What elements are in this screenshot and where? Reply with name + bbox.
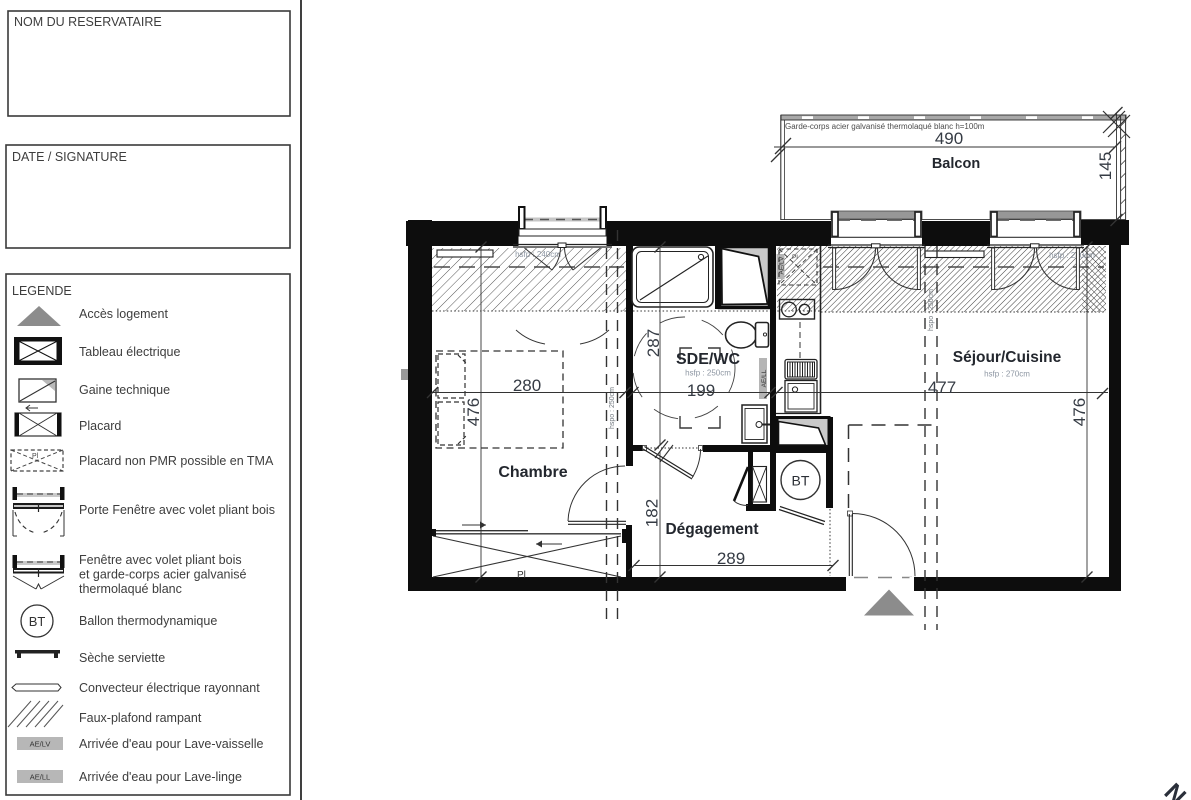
svg-text:Ballon thermodynamique: Ballon thermodynamique (79, 614, 217, 628)
svg-text:Fenêtre avec volet pliant bois: Fenêtre avec volet pliant bois (79, 553, 242, 567)
svg-text:Sèche serviette: Sèche serviette (79, 651, 165, 665)
svg-text:AE/LV: AE/LV (30, 740, 51, 749)
svg-text:thermolaqué blanc: thermolaqué blanc (79, 582, 182, 596)
svg-text:Garde-corps acier galvanisé th: Garde-corps acier galvanisé thermolaqué … (785, 122, 985, 131)
svg-text:280: 280 (513, 376, 541, 395)
svg-text:hspo : 250cm: hspo : 250cm (609, 387, 616, 429)
svg-text:Pl: Pl (792, 254, 798, 261)
svg-text:Dégagement: Dégagement (665, 521, 758, 538)
svg-text:BT: BT (29, 614, 46, 629)
svg-text:BT: BT (792, 473, 810, 489)
svg-text:289: 289 (717, 549, 745, 568)
svg-text:et garde-corps acier galvanisé: et garde-corps acier galvanisé (79, 568, 246, 582)
svg-text:AE/LL: AE/LL (30, 773, 50, 782)
svg-text:182: 182 (643, 499, 662, 527)
svg-text:Pl: Pl (32, 453, 39, 460)
svg-text:Arrivée d'eau pour Lave-vaisse: Arrivée d'eau pour Lave-vaisselle (79, 737, 263, 751)
svg-text:Arrivée d'eau pour Lave-linge: Arrivée d'eau pour Lave-linge (79, 770, 242, 784)
svg-text:AE/LL: AE/LL (761, 369, 768, 387)
svg-text:DATE / SIGNATURE: DATE / SIGNATURE (12, 150, 127, 164)
svg-text:Séjour/Cuisine: Séjour/Cuisine (953, 349, 1062, 366)
svg-text:SDE/WC: SDE/WC (676, 351, 740, 368)
svg-text:287: 287 (644, 329, 663, 357)
svg-text:Faux-plafond rampant: Faux-plafond rampant (79, 711, 202, 725)
svg-text:Pl: Pl (517, 570, 526, 581)
svg-text:199: 199 (687, 381, 715, 400)
svg-text:477: 477 (928, 378, 956, 397)
svg-text:hspo : 250cm: hspo : 250cm (928, 289, 935, 331)
svg-text:Porte Fenêtre avec volet plian: Porte Fenêtre avec volet pliant bois (79, 503, 275, 517)
svg-text:476: 476 (464, 398, 483, 426)
svg-text:Chambre: Chambre (498, 464, 567, 481)
svg-text:NOM DU RESERVATAIRE: NOM DU RESERVATAIRE (14, 15, 162, 29)
svg-text:hsfp : 270cm: hsfp : 270cm (984, 370, 1030, 379)
svg-text:hsfp : 240cm: hsfp : 240cm (515, 250, 561, 259)
svg-text:145: 145 (1096, 152, 1115, 180)
svg-text:Convecteur électrique rayonnan: Convecteur électrique rayonnant (79, 681, 260, 695)
svg-text:hsfp : 250cm: hsfp : 250cm (685, 369, 731, 378)
svg-text:490: 490 (935, 129, 963, 148)
svg-text:Placard non PMR possible en TM: Placard non PMR possible en TMA (79, 454, 274, 468)
svg-text:Tableau électrique: Tableau électrique (79, 345, 181, 359)
svg-text:Balcon: Balcon (932, 156, 980, 172)
svg-text:Placard: Placard (79, 419, 121, 433)
svg-text:Gaine technique: Gaine technique (79, 383, 170, 397)
svg-text:476: 476 (1070, 398, 1089, 426)
svg-text:LEGENDE: LEGENDE (12, 284, 72, 298)
svg-text:hsfp : 240cm: hsfp : 240cm (1049, 251, 1095, 260)
svg-text:Accès logement: Accès logement (79, 307, 168, 321)
svg-text:N: N (1159, 778, 1191, 800)
